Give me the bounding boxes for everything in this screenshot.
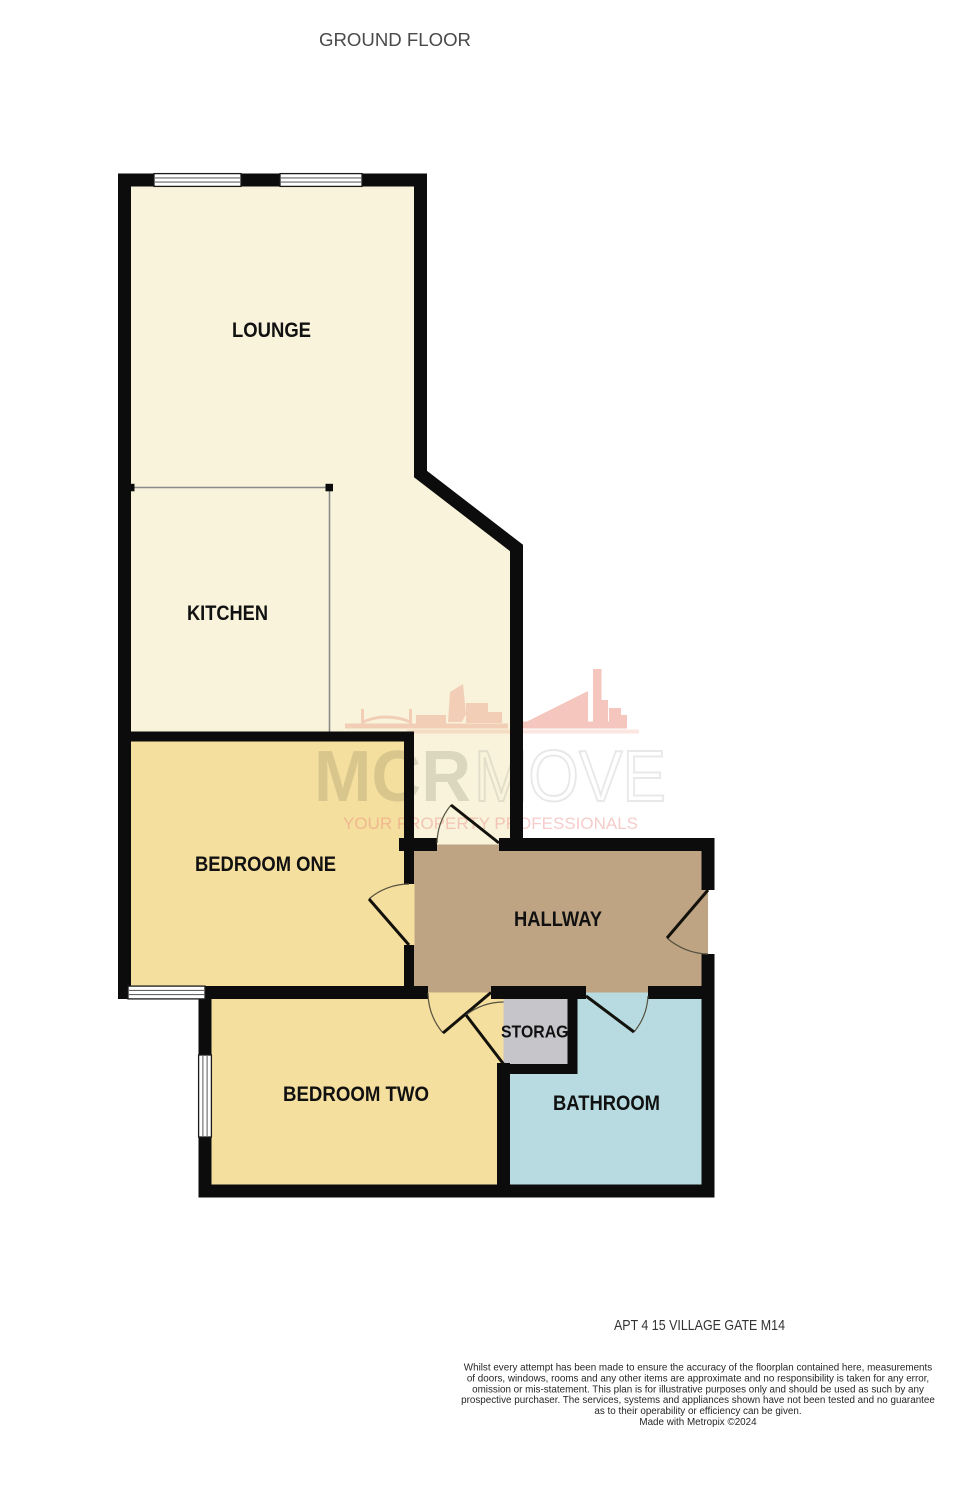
svg-text:as to their operability or eff: as to their operability or efficiency ca… (594, 1406, 801, 1417)
svg-text:BATHROOM: BATHROOM (553, 1092, 660, 1115)
svg-text:MCR: MCR (314, 737, 471, 817)
svg-text:of doors, windows, rooms and a: of doors, windows, rooms and any other i… (467, 1373, 929, 1384)
svg-text:YOUR PROPERTY PROFESSIONALS: YOUR PROPERTY PROFESSIONALS (343, 814, 638, 833)
svg-text:BEDROOM ONE: BEDROOM ONE (195, 853, 336, 876)
svg-text:MOVE: MOVE (474, 737, 666, 817)
svg-text:KITCHEN: KITCHEN (187, 602, 268, 625)
svg-text:GROUND FLOOR: GROUND FLOOR (319, 29, 471, 50)
svg-text:omission or mis-statement. Thi: omission or mis-statement. This plan is … (472, 1384, 924, 1395)
svg-text:STORAGE: STORAGE (501, 1022, 579, 1042)
svg-text:Whilst every attempt has been: Whilst every attempt has been made to en… (464, 1363, 932, 1374)
svg-text:prospective purchaser. The ser: prospective purchaser. The services, sys… (461, 1395, 935, 1406)
svg-text:HALLWAY: HALLWAY (514, 908, 602, 931)
svg-text:APT 4 15 VILLAGE GATE M14: APT 4 15 VILLAGE GATE M14 (614, 1318, 785, 1334)
svg-text:BEDROOM TWO: BEDROOM TWO (283, 1083, 429, 1106)
svg-text:LOUNGE: LOUNGE (232, 319, 311, 342)
svg-text:Made with Metropix ©2024: Made with Metropix ©2024 (639, 1417, 757, 1428)
